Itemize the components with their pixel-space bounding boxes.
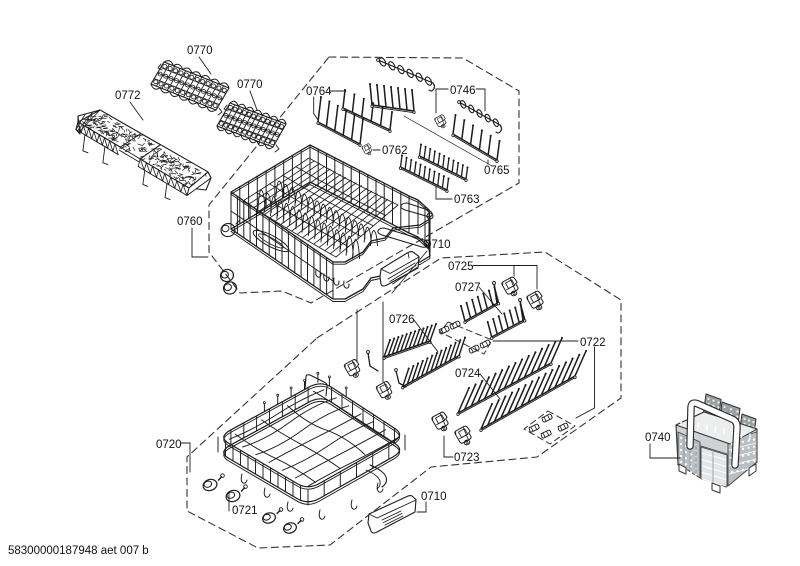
svg-text:0770: 0770: [187, 45, 213, 57]
svg-text:0710: 0710: [425, 239, 451, 251]
svg-text:0772: 0772: [115, 90, 141, 102]
svg-text:0723: 0723: [454, 452, 480, 464]
svg-text:0746: 0746: [450, 85, 476, 97]
svg-text:0763: 0763: [454, 194, 480, 206]
svg-text:0710: 0710: [421, 491, 447, 503]
svg-text:0770: 0770: [237, 79, 263, 91]
svg-text:0727: 0727: [455, 282, 481, 294]
svg-text:0722: 0722: [580, 337, 606, 349]
svg-text:58300000187948 aet 007 b: 58300000187948 aet 007 b: [8, 545, 149, 557]
svg-text:0721: 0721: [232, 505, 258, 517]
svg-text:0764: 0764: [306, 86, 332, 98]
svg-text:0724: 0724: [455, 368, 481, 380]
svg-text:0760: 0760: [177, 216, 203, 228]
svg-text:0762: 0762: [382, 145, 408, 157]
svg-text:0765: 0765: [484, 165, 510, 177]
svg-text:0720: 0720: [156, 439, 182, 451]
svg-text:0726: 0726: [389, 314, 415, 326]
svg-text:0740: 0740: [645, 432, 671, 444]
svg-text:0725: 0725: [448, 261, 474, 273]
